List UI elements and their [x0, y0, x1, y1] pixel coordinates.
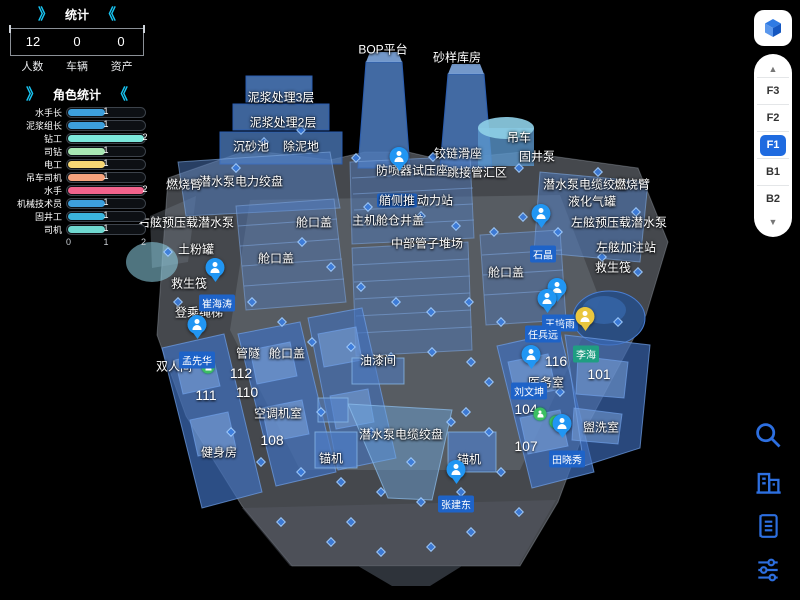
role-bar-value: 2	[142, 184, 147, 194]
role-chart-panel: 》 角色统计 《 水手长1泥浆组长1钻工2司钻1电工1吊车司机1水手2机械技术员…	[2, 82, 152, 247]
role-bar-track: 1	[66, 198, 146, 209]
person-name-label[interactable]: 李海	[573, 346, 599, 363]
chevrons-right-icon: 》	[26, 87, 41, 102]
role-bar-fill	[68, 187, 144, 194]
person-name-label[interactable]: 田晓秀	[549, 451, 585, 468]
stat-value: 12	[11, 29, 55, 55]
floor-item-F1[interactable]: F1	[760, 135, 786, 156]
role-bar-value: 2	[142, 132, 147, 142]
role-label: 电工	[8, 158, 62, 171]
hatch-center	[352, 242, 472, 356]
building-icon	[753, 466, 783, 496]
stats-panel: 》 统计 《 1200 人数车辆资产	[2, 2, 152, 74]
floor-selector: ▲ F3F2F1B1B2 ▼	[754, 54, 792, 237]
role-label: 水手长	[8, 106, 62, 119]
tower-bop	[358, 52, 410, 168]
search-button[interactable]	[753, 420, 783, 450]
role-bar-track: 1	[66, 159, 146, 170]
role-axis: 012	[2, 236, 152, 247]
stat-value: 0	[99, 29, 143, 55]
role-bar-row: 水手2	[2, 184, 152, 197]
role-bar-track: 1	[66, 211, 146, 222]
port-tank	[126, 242, 178, 282]
floor-down-button[interactable]: ▼	[754, 213, 792, 231]
role-bar-row: 机械技术员1	[2, 197, 152, 210]
role-bar-track: 2	[66, 185, 146, 196]
stats-labels-row: 人数车辆资产	[10, 58, 144, 74]
hatch-upper-center	[350, 156, 474, 244]
role-bar-fill	[68, 122, 105, 129]
stat-label: 资产	[99, 58, 144, 74]
stats-panel-title: 统计	[65, 6, 89, 23]
role-bar-fill	[68, 161, 105, 168]
role-bar-track: 1	[66, 120, 146, 131]
bottom-toolbar	[748, 420, 788, 584]
person-name-label[interactable]: 张建东	[438, 496, 474, 513]
role-bar-fill	[68, 213, 105, 220]
left-panel: 》 统计 《 1200 人数车辆资产 》 角色统计 《 水手长1泥浆组长1钻工2…	[2, 2, 152, 247]
floor-item-B1[interactable]: B1	[760, 162, 786, 183]
person-name-label[interactable]: 任兵远	[525, 326, 561, 343]
role-axis-tick: 0	[66, 237, 71, 247]
role-label: 吊车司机	[8, 171, 62, 184]
person-name-label[interactable]: 刘文坤	[511, 383, 547, 400]
person-name-label[interactable]: 石晶	[530, 246, 556, 263]
role-bar-track: 2	[66, 133, 146, 144]
role-bar-row: 水手长1	[2, 106, 152, 119]
role-label: 机械技术员	[8, 197, 62, 210]
role-bar-value: 1	[103, 197, 108, 207]
role-bar-row: 电工1	[2, 158, 152, 171]
chevrons-right-icon: 》	[38, 7, 53, 22]
role-label: 泥浆组长	[8, 119, 62, 132]
view-cube-button[interactable]	[754, 10, 792, 46]
filters-button[interactable]	[754, 556, 782, 584]
floor-item-B2[interactable]: B2	[760, 189, 786, 210]
role-bar-fill	[68, 174, 105, 181]
role-bar-fill	[68, 226, 105, 233]
role-chart-title: 角色统计	[53, 86, 101, 103]
role-bar-track: 1	[66, 172, 146, 183]
role-bar-row: 固井工1	[2, 210, 152, 223]
role-label: 水手	[8, 184, 62, 197]
role-bar-value: 1	[103, 158, 108, 168]
digital-twin-app: BOP平台砂样库房泥浆处理3层泥浆处理2层沉砂池除泥地吊车铰链滑座固井泵跳接管汇…	[0, 0, 800, 600]
cube-3d-icon	[761, 16, 785, 40]
chevrons-left-icon: 《	[113, 87, 128, 102]
role-bar-row: 泥浆组长1	[2, 119, 152, 132]
role-bar-value: 1	[103, 171, 108, 181]
role-bar-fill	[68, 148, 105, 155]
role-label: 司机	[8, 223, 62, 236]
list-button[interactable]	[754, 512, 782, 540]
hatch-right	[480, 230, 566, 325]
role-bar-track: 1	[66, 146, 146, 157]
role-bar-track: 1	[66, 107, 146, 118]
list-icon	[754, 512, 782, 540]
role-bar-value: 1	[103, 119, 108, 129]
role-bar-fill	[68, 200, 105, 207]
search-icon	[753, 420, 783, 450]
stat-label: 车辆	[55, 58, 100, 74]
role-bar-fill	[68, 135, 144, 142]
floor-up-button[interactable]: ▲	[754, 60, 792, 78]
role-bar-value: 1	[103, 145, 108, 155]
role-label: 钻工	[8, 132, 62, 145]
floor-item-F3[interactable]: F3	[760, 81, 786, 102]
chevrons-left-icon: 《	[101, 7, 116, 22]
mud-treatment-stack	[220, 76, 342, 164]
stat-label: 人数	[10, 58, 55, 74]
role-bar-fill	[68, 109, 105, 116]
role-label: 司钻	[8, 145, 62, 158]
role-bar-track: 1	[66, 224, 146, 235]
stats-panel-header: 》 统计 《	[2, 2, 152, 26]
crane-cylinder	[478, 117, 534, 166]
bow-tip	[358, 566, 462, 586]
bow-deck	[242, 500, 556, 566]
person-name-label[interactable]: 崔海涛	[199, 295, 235, 312]
sliders-icon	[754, 556, 782, 584]
person-name-label[interactable]: 孟先华	[179, 352, 215, 369]
role-bar-value: 1	[103, 210, 108, 220]
role-bar-value: 1	[103, 223, 108, 233]
role-bar-row: 司机1	[2, 223, 152, 236]
role-chart-header: 》 角色统计 《	[2, 82, 152, 106]
role-axis-tick: 1	[103, 237, 108, 247]
floor-item-F2[interactable]: F2	[760, 108, 786, 129]
hatch-left	[236, 199, 346, 310]
building-button[interactable]	[753, 466, 783, 496]
role-bar-row: 钻工2	[2, 132, 152, 145]
role-bars: 水手长1泥浆组长1钻工2司钻1电工1吊车司机1水手2机械技术员1固井工1司机1	[2, 106, 152, 236]
role-axis-tick: 2	[141, 237, 146, 247]
role-bar-value: 1	[103, 106, 108, 116]
floor-options: F3F2F1B1B2	[760, 78, 786, 213]
role-bar-row: 司钻1	[2, 145, 152, 158]
stats-values-row: 1200	[10, 28, 144, 56]
stat-value: 0	[55, 29, 99, 55]
role-label: 固井工	[8, 210, 62, 223]
role-bar-row: 吊车司机1	[2, 171, 152, 184]
